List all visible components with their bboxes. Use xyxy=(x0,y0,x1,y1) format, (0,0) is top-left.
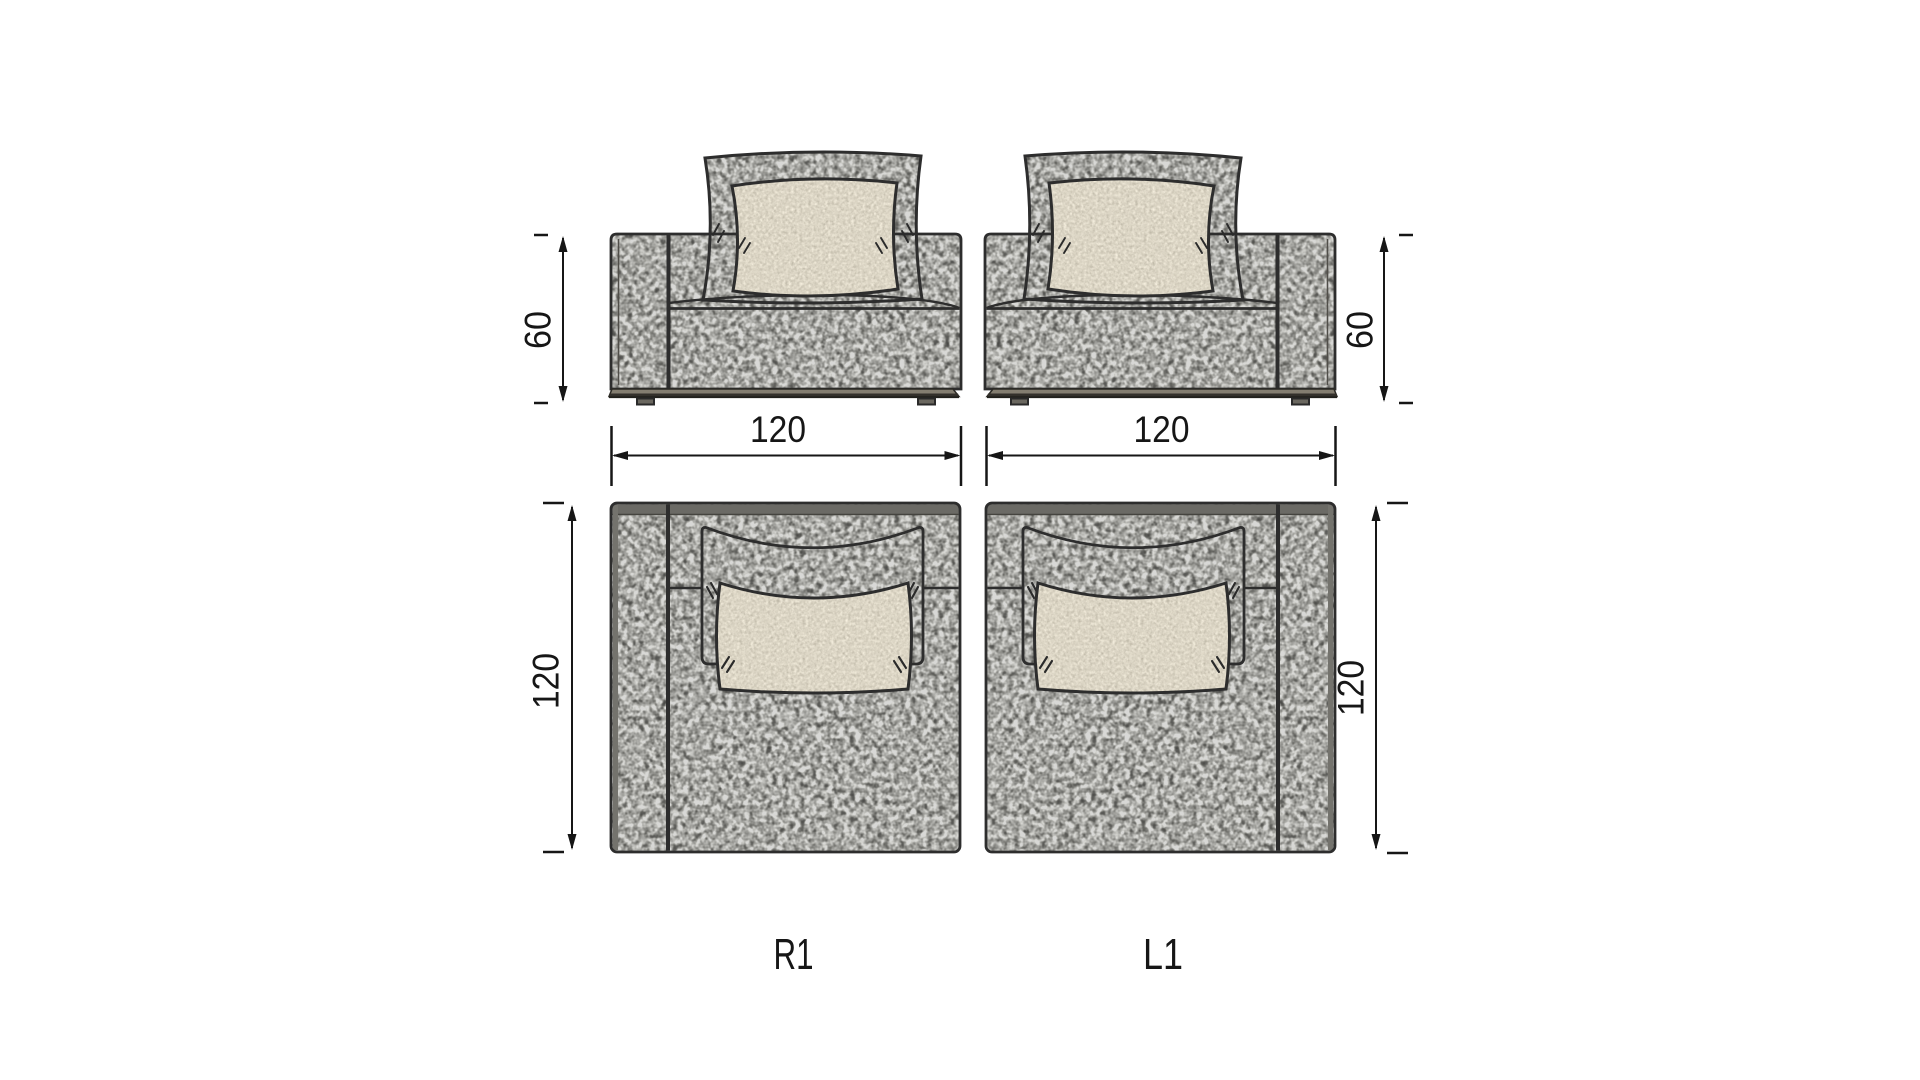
svg-text:60: 60 xyxy=(1340,311,1381,349)
svg-text:L1: L1 xyxy=(1143,931,1183,979)
svg-text:120: 120 xyxy=(1331,660,1372,716)
svg-text:R1: R1 xyxy=(774,931,814,979)
svg-text:120: 120 xyxy=(750,409,806,450)
svg-text:120: 120 xyxy=(1134,409,1190,450)
svg-text:120: 120 xyxy=(526,653,567,709)
svg-text:60: 60 xyxy=(518,311,559,349)
